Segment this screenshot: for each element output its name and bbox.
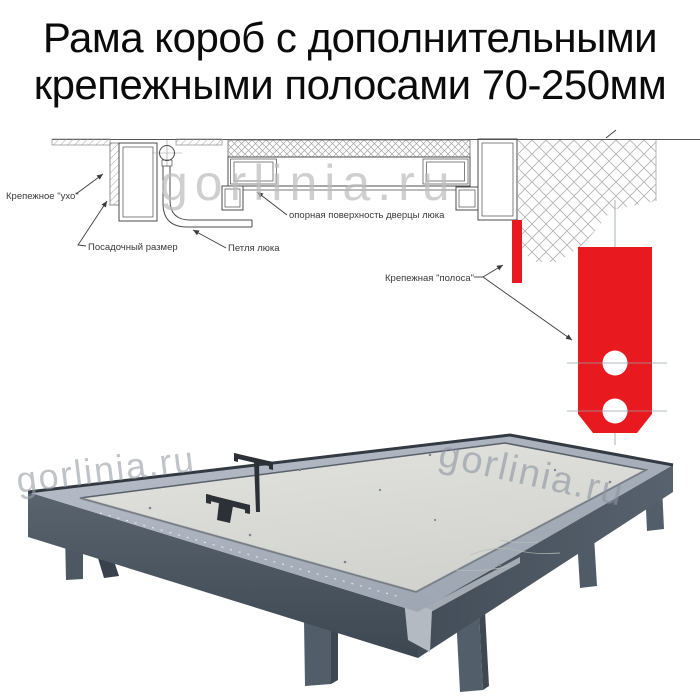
label-seat-size: Посадочный размер <box>88 242 178 253</box>
label-hinge: Петля люка <box>228 243 280 254</box>
door-top-cladding <box>228 140 470 157</box>
label-mounting-strip: Крепежная "полоса" <box>385 273 474 284</box>
label-support-surface: опорная поверхность дверцы люка <box>289 210 445 221</box>
hinge-arm-outer <box>163 166 252 227</box>
frame-profile-left <box>110 143 157 221</box>
wall-hatch <box>518 140 656 262</box>
ceiling-hatch-left <box>52 139 110 145</box>
frame-profile-right <box>478 139 517 220</box>
title-line-2: крепежными полосами 70-250мм <box>0 61 700 108</box>
ceiling-hatch-mid <box>176 139 222 145</box>
mounting-ear <box>110 143 119 205</box>
hatch-door-panel <box>222 140 478 210</box>
page-title: Рама короб с дополнительными крепежными … <box>0 14 700 108</box>
technical-diagram: Крепежное "ухо" Посадочный размер Петля … <box>0 126 700 448</box>
product-photo <box>0 430 700 700</box>
label-mounting-ear: Крепежное "ухо" <box>6 191 79 202</box>
mounting-strip-thin <box>512 220 522 283</box>
leader-lines <box>76 174 572 340</box>
dimension-tick <box>606 130 616 138</box>
title-line-1: Рама короб с дополнительными <box>0 14 700 61</box>
